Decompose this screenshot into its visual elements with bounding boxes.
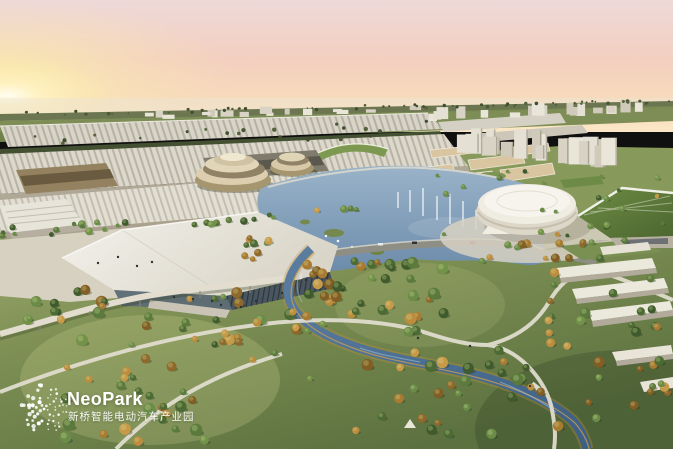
scene-canvas [0, 0, 673, 449]
neopark-aerial-rendering: NeoPark 新桥智能电动汽车产业园 [0, 0, 673, 449]
